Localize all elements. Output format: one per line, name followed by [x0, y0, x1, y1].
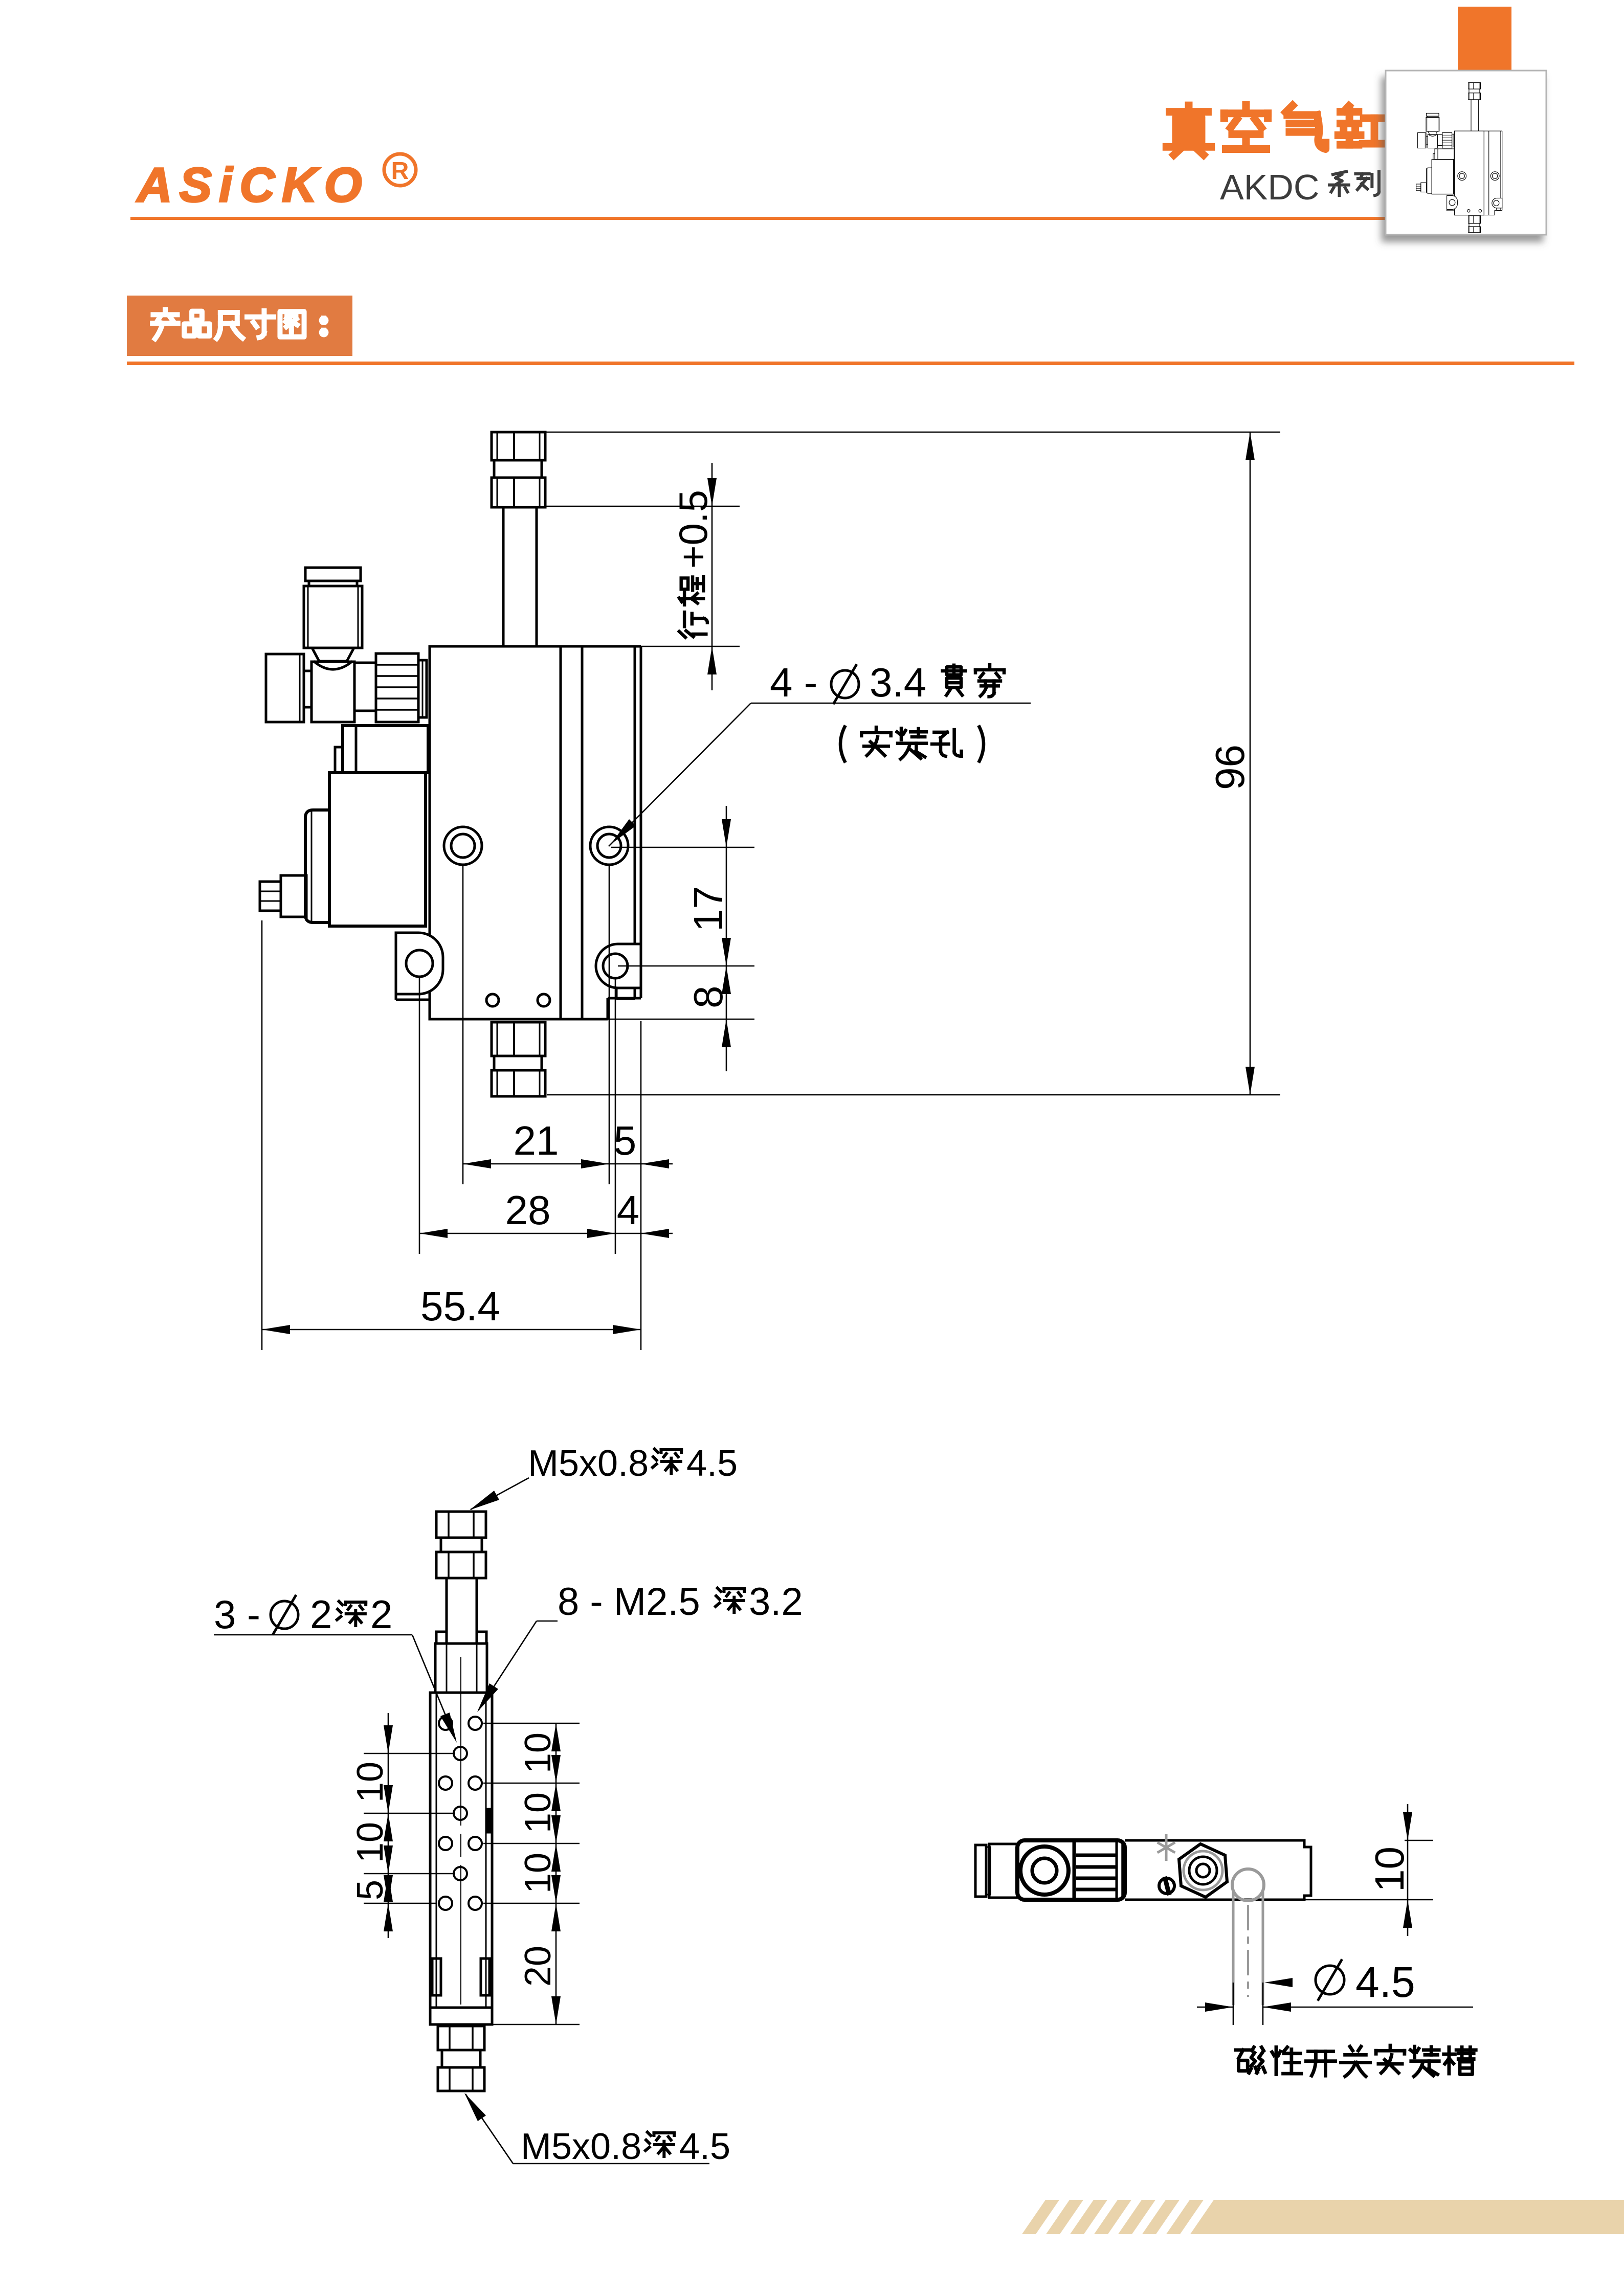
- svg-text:M5x0.8: M5x0.8: [528, 1443, 649, 1484]
- svg-text:M5x0.8: M5x0.8: [521, 2126, 641, 2167]
- svg-text:10: 10: [350, 1762, 391, 1803]
- svg-text:2: 2: [310, 1592, 332, 1637]
- svg-text:4 -: 4 -: [770, 660, 817, 705]
- svg-text:4.5: 4.5: [1355, 1958, 1415, 2006]
- svg-text:ASiCKO: ASiCKO: [136, 158, 369, 212]
- svg-text:10: 10: [350, 1822, 391, 1863]
- svg-text:+0.5: +0.5: [671, 490, 716, 569]
- svg-text:96: 96: [1207, 745, 1253, 790]
- svg-text:10: 10: [518, 1792, 559, 1833]
- svg-text:5: 5: [350, 1880, 391, 1900]
- svg-text:R: R: [391, 157, 409, 185]
- svg-text:AKDC: AKDC: [1220, 167, 1319, 207]
- svg-text:55.4: 55.4: [420, 1284, 500, 1329]
- svg-text:3 -: 3 -: [214, 1592, 260, 1637]
- svg-text:4.5: 4.5: [686, 1443, 738, 1484]
- svg-text:10: 10: [1367, 1847, 1412, 1892]
- svg-text:28: 28: [505, 1187, 551, 1233]
- svg-text:21: 21: [514, 1118, 559, 1163]
- svg-text:3.4: 3.4: [870, 660, 926, 705]
- svg-text:4: 4: [617, 1187, 640, 1233]
- svg-text:8: 8: [685, 986, 731, 1009]
- svg-text:17: 17: [685, 886, 731, 932]
- svg-text:3.2: 3.2: [749, 1580, 803, 1624]
- svg-text:2: 2: [370, 1592, 392, 1637]
- svg-text:10: 10: [518, 1732, 559, 1773]
- svg-text:10: 10: [518, 1853, 559, 1894]
- svg-text:20: 20: [518, 1946, 559, 1987]
- svg-text:4.5: 4.5: [679, 2126, 730, 2167]
- svg-text:8 - M2.5: 8 - M2.5: [558, 1580, 700, 1624]
- svg-text:5: 5: [614, 1118, 637, 1163]
